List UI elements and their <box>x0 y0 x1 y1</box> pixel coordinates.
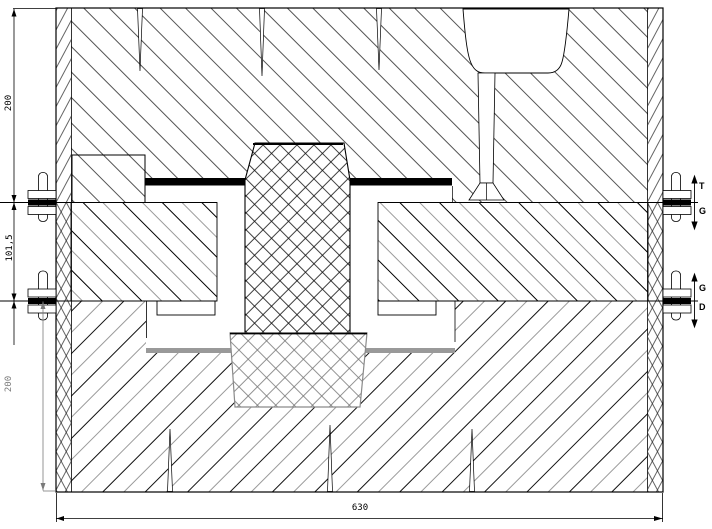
drawing-canvas <box>0 0 712 529</box>
gate-foot-block <box>230 333 367 407</box>
alignment-bolt-right-lower <box>663 271 691 320</box>
middle-plate-right-hatch <box>378 203 648 301</box>
center-gate-column <box>245 143 350 333</box>
plate-label-arrows <box>692 176 697 327</box>
arrow-down-icon <box>692 222 697 229</box>
arrow-up-icon <box>692 176 697 183</box>
ejector-pin-shaft <box>478 73 495 183</box>
plate-label-T: T <box>699 181 705 191</box>
plate-label-G-lower: G <box>699 283 706 293</box>
dimension-label-width: 630 <box>340 503 380 513</box>
molded-part-cavity <box>463 9 569 73</box>
alignment-bolt-right-upper <box>663 173 691 222</box>
arrow-up-icon <box>692 274 697 281</box>
middle-plate-left-hatch <box>71 203 217 301</box>
right-step-pocket <box>378 301 436 315</box>
plate-label-D: D <box>699 302 706 312</box>
plate-label-G-upper: G <box>699 206 706 216</box>
dimension-label-middle-height: 101,5 <box>5 226 15 270</box>
left-step-pocket <box>157 301 215 315</box>
mold-cross-section-drawing: 200 101,5 200 630 T G G D <box>0 0 712 529</box>
dimension-label-bottom-height: 200 <box>4 364 14 404</box>
alignment-bolt-left-lower <box>28 271 56 320</box>
dimension-label-top-height: 200 <box>4 83 14 123</box>
alignment-bolt-left-upper <box>28 173 56 222</box>
arrow-down-icon <box>692 320 697 327</box>
